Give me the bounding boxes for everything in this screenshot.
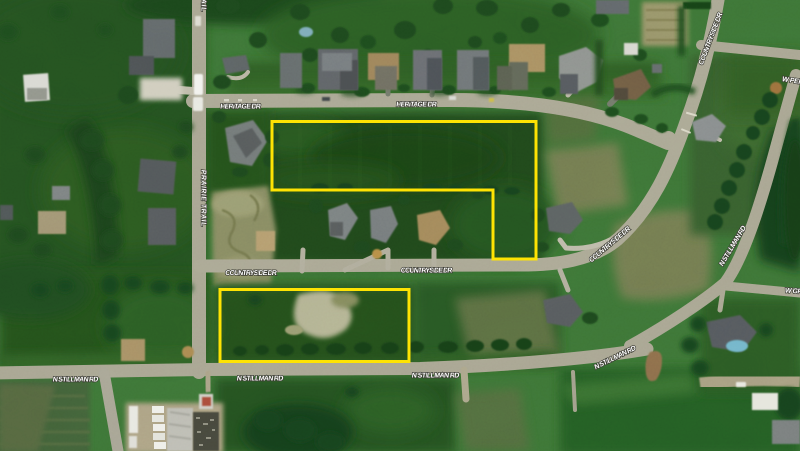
svg-text:N STILLMAN RD: N STILLMAN RD xyxy=(411,373,460,380)
svg-text:AIL: AIL xyxy=(200,0,207,13)
svg-text:HERITAGE DR: HERITAGE DR xyxy=(396,102,438,109)
svg-text:N STILLMAN RD: N STILLMAN RD xyxy=(236,376,284,383)
svg-text:COUNTRYSIDE DR: COUNTRYSIDE DR xyxy=(400,268,453,275)
svg-text:N STILLMAN RD: N STILLMAN RD xyxy=(52,377,99,384)
svg-text:HERITAGE DR: HERITAGE DR xyxy=(220,104,262,111)
svg-text:PRAIRIE TRAIL: PRAIRIE TRAIL xyxy=(200,169,207,227)
svg-text:COUNTRYSIDE DR: COUNTRYSIDE DR xyxy=(225,270,278,277)
svg-text:W GR: W GR xyxy=(784,288,800,296)
